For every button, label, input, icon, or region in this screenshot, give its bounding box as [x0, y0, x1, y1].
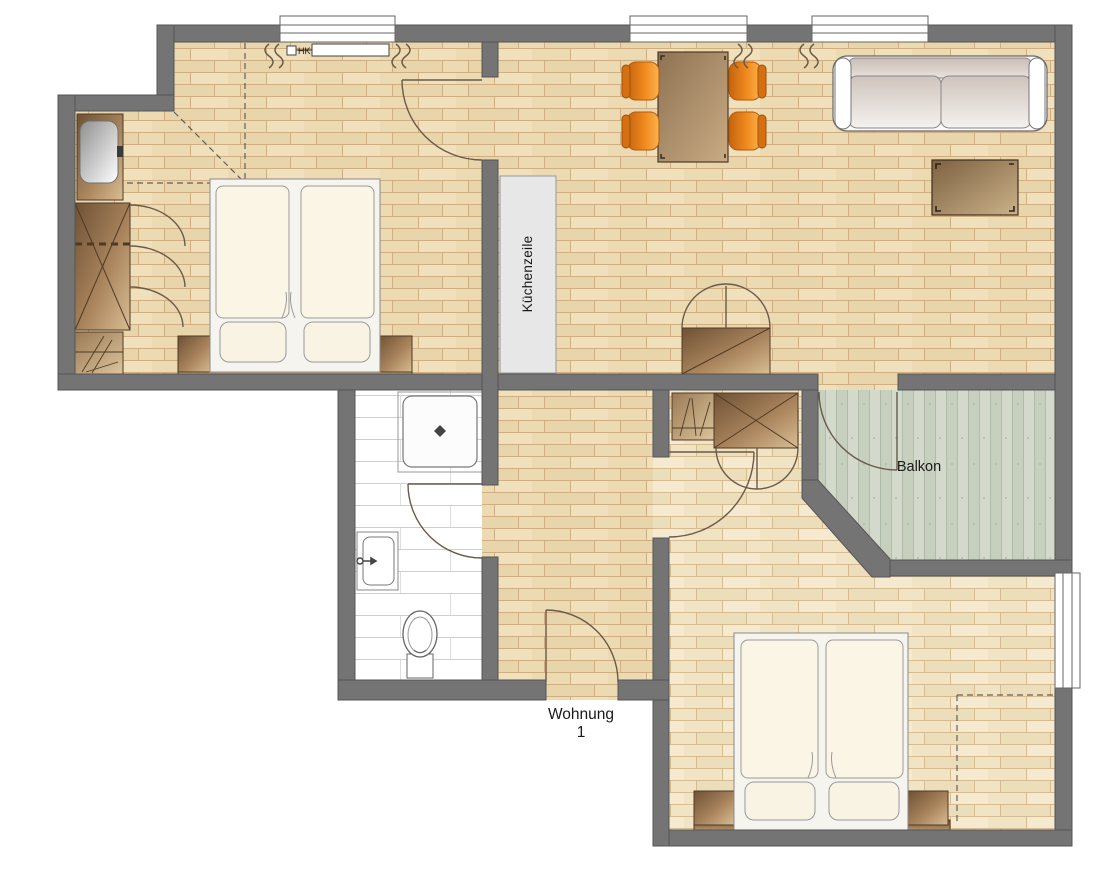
wall [58, 374, 818, 390]
window [812, 16, 928, 42]
wall [1055, 688, 1072, 846]
duvet [216, 186, 289, 318]
shelf [672, 393, 714, 440]
sideboard-cabinet [682, 284, 770, 374]
double-bed [178, 179, 412, 374]
double-bed [734, 633, 908, 830]
chair [622, 62, 659, 100]
duvet [741, 640, 818, 778]
shower [398, 392, 482, 472]
apartment-label-line1: Wohnung [548, 706, 614, 723]
coffee-table [932, 160, 1018, 215]
apartment-label-line2: 1 [577, 724, 586, 741]
sofa [833, 56, 1047, 131]
window [280, 16, 395, 42]
floor-plan-page: HK Küchenzeile [0, 0, 1100, 878]
threshold [482, 77, 498, 160]
washbasin [357, 532, 398, 590]
radiator: HK [287, 44, 389, 56]
dresser-with-mirror [77, 114, 123, 200]
threshold [482, 485, 498, 557]
wall [802, 390, 818, 482]
pillow [829, 782, 899, 820]
wall [482, 160, 498, 485]
wall [887, 560, 1072, 576]
chair [622, 112, 659, 150]
toilet [403, 611, 437, 678]
chair [729, 112, 766, 150]
threshold [546, 680, 618, 700]
wall [482, 557, 498, 700]
duvet [301, 186, 374, 318]
balcony-label: Balkon [897, 459, 941, 475]
pillow [745, 782, 815, 820]
nightstand [694, 791, 734, 825]
nightstand [178, 336, 212, 372]
wall [618, 680, 669, 700]
wall [338, 680, 546, 700]
duvet [826, 640, 903, 778]
pillow [220, 322, 286, 362]
shelf [75, 332, 123, 374]
wall [653, 390, 669, 457]
window [1055, 573, 1080, 688]
wall [747, 25, 812, 42]
kitchen-unit: Küchenzeile [500, 176, 556, 373]
dining-table [658, 52, 728, 162]
wall [58, 95, 75, 390]
wall [395, 25, 630, 42]
wall [1055, 25, 1072, 562]
floor-plan: HK Küchenzeile [0, 0, 1100, 878]
nightstand [908, 791, 948, 825]
wall [482, 42, 498, 77]
wall [338, 390, 355, 700]
window [630, 16, 747, 42]
hallway-floor [498, 390, 669, 680]
kitchen-unit-label: Küchenzeile [520, 236, 535, 313]
pillow [304, 322, 370, 362]
wall [157, 25, 280, 42]
nightstand [378, 336, 412, 372]
wall [653, 830, 1072, 846]
wall [898, 374, 1072, 390]
threshold [653, 457, 669, 538]
wall [928, 25, 1072, 42]
radiator-label: HK [298, 46, 311, 56]
threshold [818, 374, 898, 390]
